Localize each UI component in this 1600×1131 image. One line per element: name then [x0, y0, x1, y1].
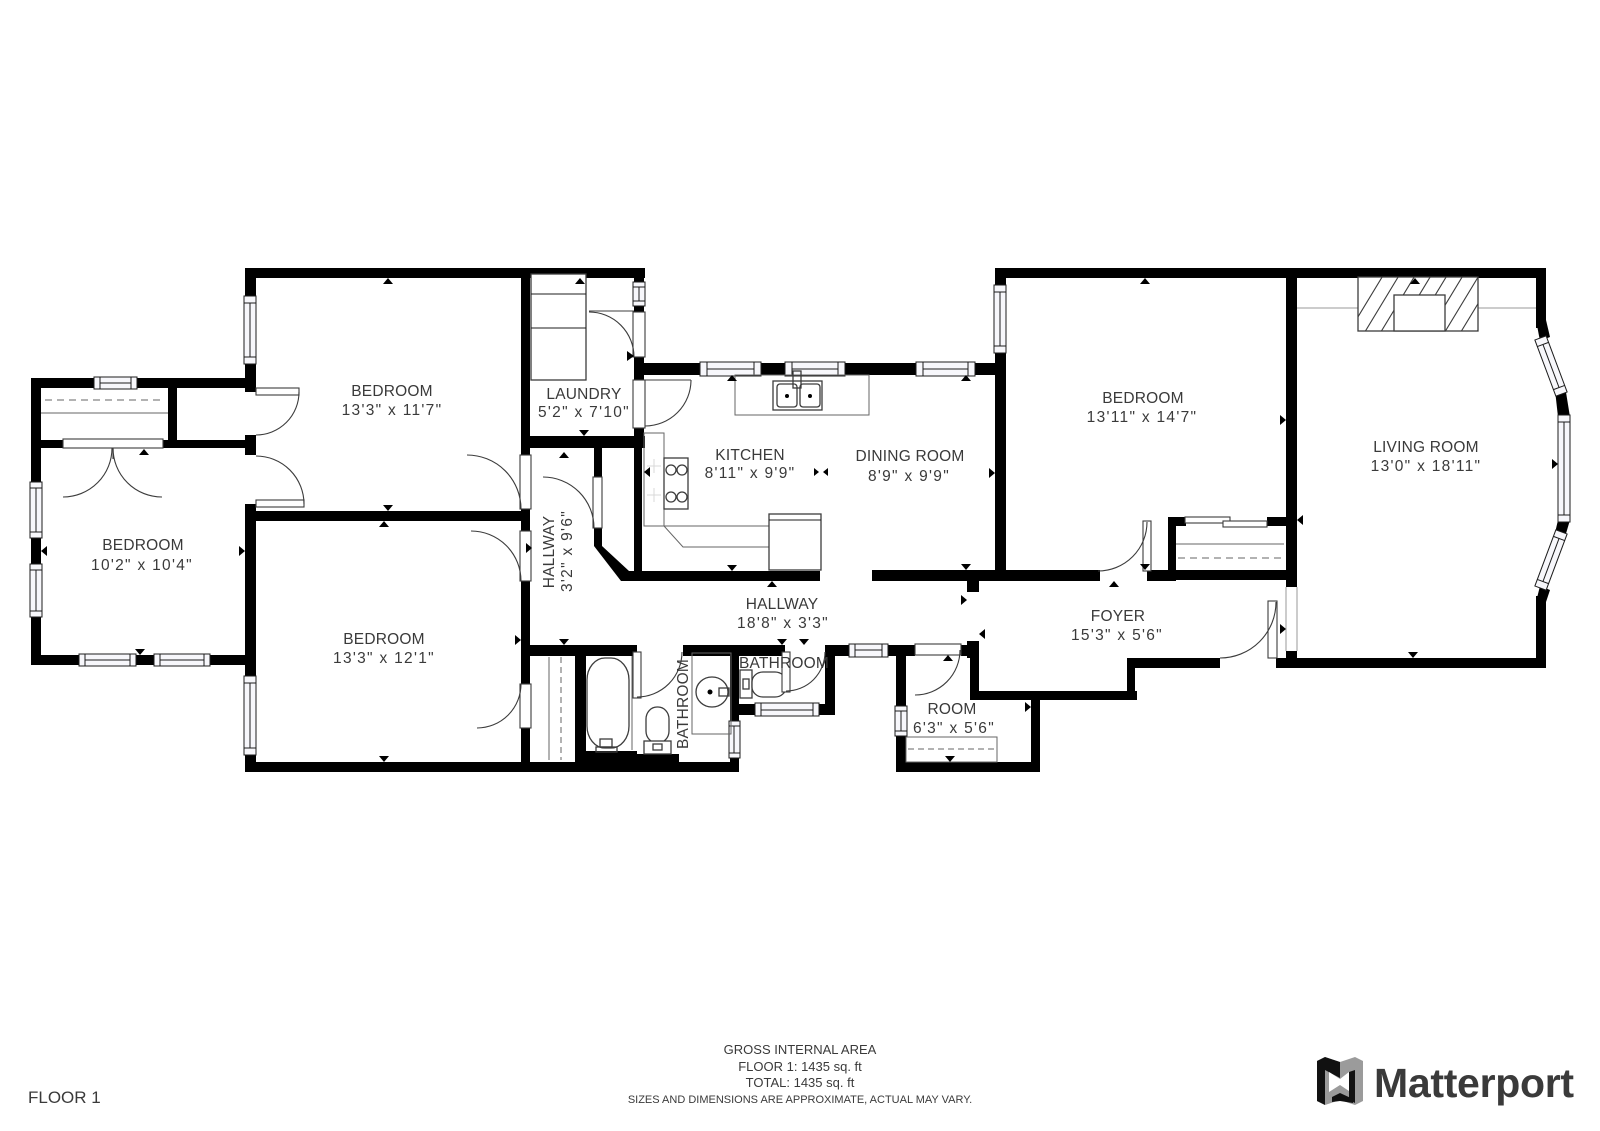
svg-text:BEDROOM: BEDROOM: [1102, 390, 1184, 407]
svg-text:13'0" x 18'11": 13'0" x 18'11": [1371, 458, 1482, 475]
svg-text:BATHROOM: BATHROOM: [675, 659, 692, 749]
svg-text:18'8" x 3'3": 18'8" x 3'3": [737, 615, 829, 632]
svg-text:FLOOR 1: FLOOR 1: [28, 1088, 101, 1107]
svg-text:BEDROOM: BEDROOM: [343, 631, 425, 648]
svg-text:LAUNDRY: LAUNDRY: [546, 386, 621, 403]
svg-text:ROOM: ROOM: [927, 701, 976, 718]
svg-text:13'3" x 12'1": 13'3" x 12'1": [333, 650, 435, 667]
svg-text:5'2" x 7'10": 5'2" x 7'10": [538, 404, 630, 421]
svg-text:LIVING ROOM: LIVING ROOM: [1373, 439, 1479, 456]
svg-text:HALLWAY: HALLWAY: [541, 516, 558, 589]
svg-text:FLOOR 1: 1435 sq. ft: FLOOR 1: 1435 sq. ft: [738, 1059, 862, 1074]
svg-text:Matterport: Matterport: [1374, 1060, 1574, 1106]
svg-text:HALLWAY: HALLWAY: [746, 596, 819, 613]
svg-text:13'11" x 14'7": 13'11" x 14'7": [1087, 409, 1198, 426]
svg-text:BATHROOM: BATHROOM: [739, 655, 829, 672]
svg-text:DINING ROOM: DINING ROOM: [856, 448, 965, 465]
svg-text:13'3" x 11'7": 13'3" x 11'7": [342, 402, 443, 419]
svg-text:KITCHEN: KITCHEN: [715, 447, 784, 464]
svg-text:TOTAL: 1435 sq. ft: TOTAL: 1435 sq. ft: [746, 1075, 855, 1090]
svg-text:BEDROOM: BEDROOM: [351, 383, 433, 400]
svg-text:8'9" x 9'9": 8'9" x 9'9": [868, 468, 950, 485]
svg-text:6'3" x 5'6": 6'3" x 5'6": [913, 720, 995, 737]
svg-text:15'3" x 5'6": 15'3" x 5'6": [1071, 627, 1163, 644]
svg-text:3'2" x 9'6": 3'2" x 9'6": [559, 510, 576, 592]
svg-text:10'2" x 10'4": 10'2" x 10'4": [91, 557, 193, 574]
svg-text:8'11" x 9'9": 8'11" x 9'9": [705, 465, 796, 482]
svg-text:BEDROOM: BEDROOM: [102, 537, 184, 554]
svg-text:GROSS INTERNAL AREA: GROSS INTERNAL AREA: [724, 1042, 877, 1057]
svg-text:SIZES AND DIMENSIONS ARE APPRO: SIZES AND DIMENSIONS ARE APPROXIMATE, AC…: [628, 1094, 972, 1106]
svg-text:FOYER: FOYER: [1091, 608, 1145, 625]
